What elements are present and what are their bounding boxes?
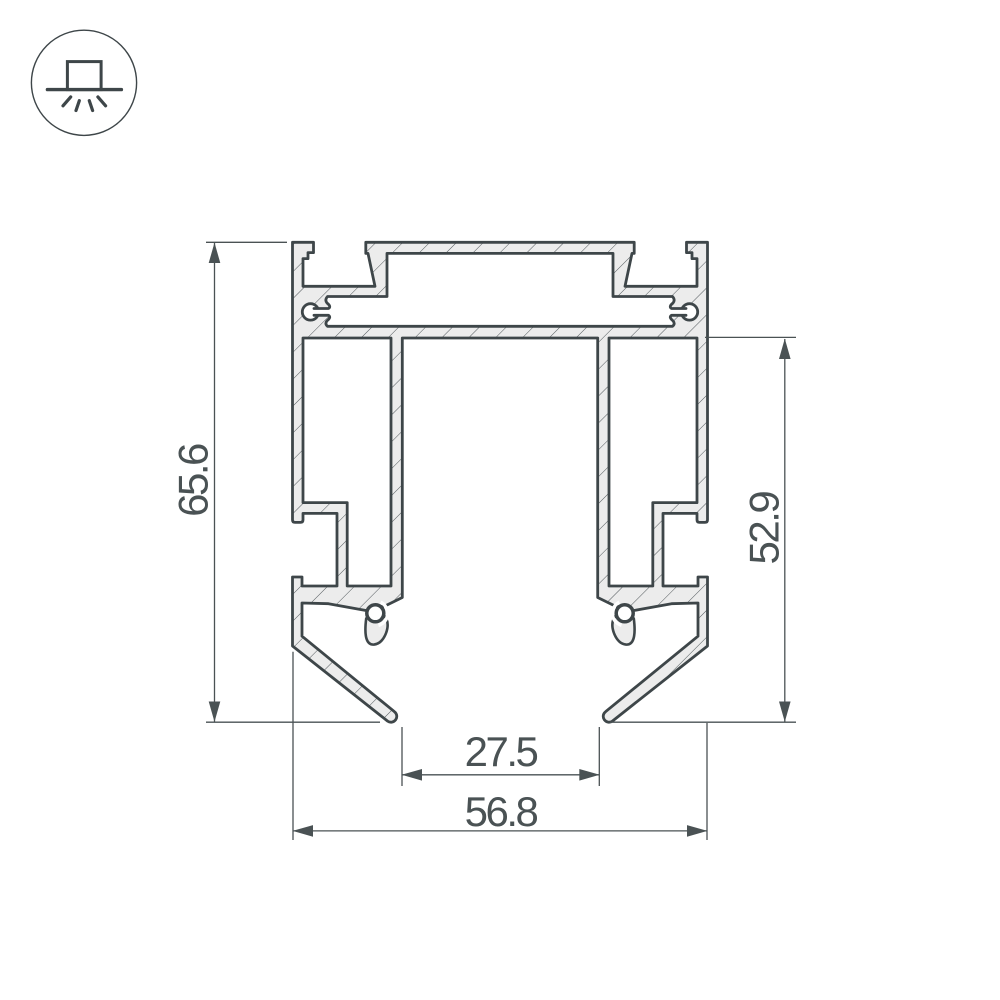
svg-text:65.6: 65.6 [170,444,217,517]
svg-text:56.8: 56.8 [465,788,538,835]
svg-text:27.5: 27.5 [465,728,538,775]
svg-text:52.9: 52.9 [741,492,788,565]
